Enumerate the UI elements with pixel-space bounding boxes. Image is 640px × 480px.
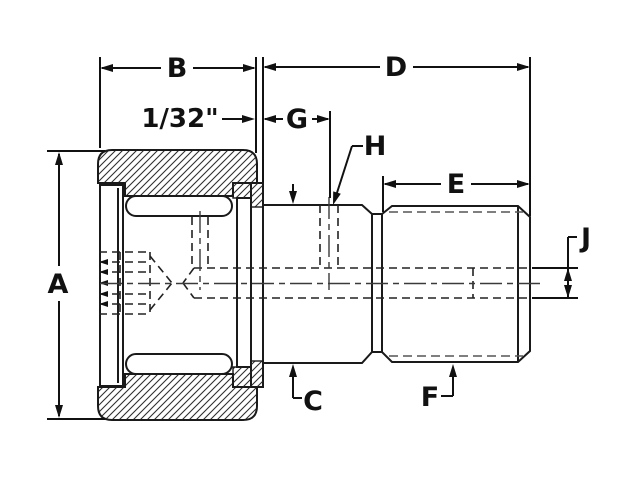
dimension-H <box>333 146 363 205</box>
flange-top-hatch <box>251 183 263 207</box>
label-E: E <box>447 169 465 200</box>
cam-follower-section-drawing: A B D 1/32" G E <box>0 0 640 480</box>
needle-roller-top <box>126 196 232 216</box>
dimension-J <box>532 237 578 298</box>
flange-body <box>251 183 263 387</box>
label-G: G <box>286 104 308 135</box>
needle-rollers <box>126 196 232 374</box>
dimension-F <box>441 364 457 396</box>
label-J: J <box>579 223 591 254</box>
label-B: B <box>167 53 188 84</box>
label-A: A <box>48 269 69 300</box>
dimension-gap <box>222 115 255 123</box>
label-gap: 1/32" <box>141 104 218 134</box>
axial-hole-cone-top <box>183 268 194 283</box>
flange-bottom-hatch <box>251 361 263 387</box>
label-H: H <box>364 131 387 162</box>
needle-roller-bottom <box>126 354 232 374</box>
flange-top-step <box>233 183 251 198</box>
flange-bottom-step <box>233 367 251 387</box>
label-D: D <box>385 52 407 83</box>
right-end-plate <box>237 198 251 367</box>
label-C: C <box>303 386 323 417</box>
axial-hole-cone-bottom <box>183 283 194 298</box>
technical-drawing-canvas: A B D 1/32" G E <box>0 0 640 480</box>
label-F: F <box>421 382 439 413</box>
